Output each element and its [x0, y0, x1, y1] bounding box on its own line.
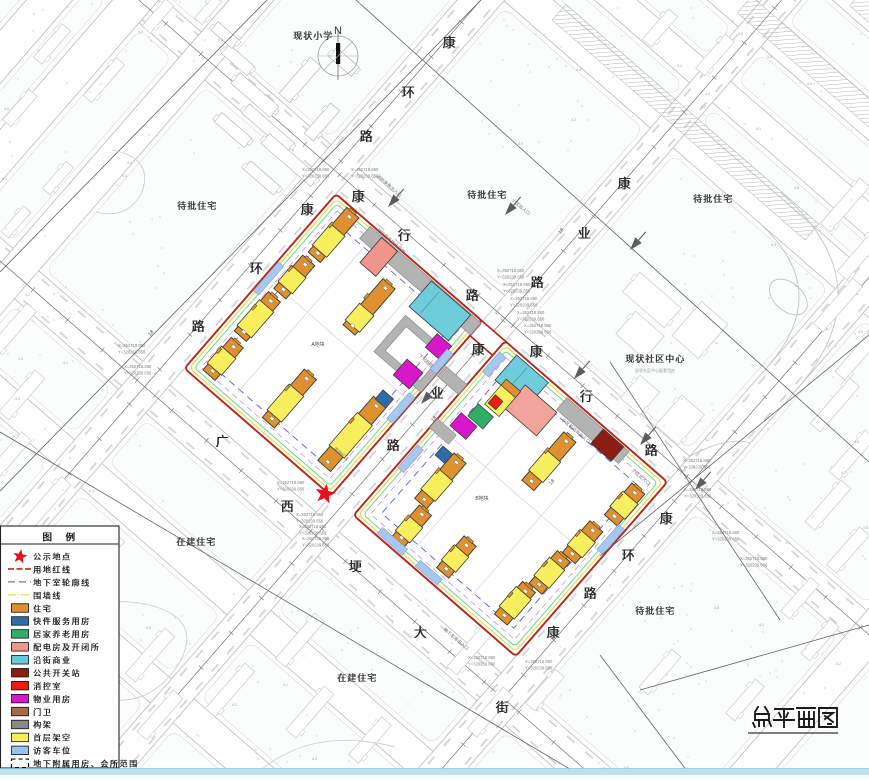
svg-text:X=352718.860: X=352718.860: [118, 343, 146, 348]
svg-text:Y=320239.656: Y=320239.656: [302, 543, 330, 548]
svg-text:X=352718.860: X=352718.860: [277, 480, 305, 485]
svg-text:路: 路: [360, 129, 373, 144]
svg-text:4.1: 4.1: [756, 127, 761, 131]
svg-text:X=352718.860: X=352718.860: [497, 268, 525, 273]
svg-text:路: 路: [387, 438, 400, 453]
svg-text:配电房及开闭所: 配电房及开闭所: [33, 642, 100, 652]
svg-text:路: 路: [466, 288, 479, 303]
svg-text:地下附属用房、会所范围: 地下附属用房、会所范围: [33, 759, 139, 769]
svg-text:现状社区中心: 现状社区中心: [625, 353, 685, 364]
svg-text:门卫: 门卫: [33, 707, 52, 717]
svg-text:Y=320239.656: Y=320239.656: [683, 465, 711, 470]
svg-text:4.5: 4.5: [738, 32, 743, 36]
svg-text:4.3: 4.3: [146, 626, 151, 630]
svg-text:X=352718.860: X=352718.860: [299, 524, 327, 529]
svg-text:4.4: 4.4: [771, 243, 776, 247]
svg-text:在建住宅: 在建住宅: [337, 672, 377, 683]
svg-text:4.7: 4.7: [701, 105, 706, 109]
svg-text:X=352718.860: X=352718.860: [740, 556, 768, 561]
svg-text:4.2: 4.2: [571, 118, 576, 122]
svg-text:地下室轮廓线: 地下室轮廓线: [33, 577, 91, 587]
svg-text:4.1: 4.1: [785, 541, 790, 545]
svg-text:Y=320239.656: Y=320239.656: [524, 330, 552, 335]
svg-text:4.0: 4.0: [858, 330, 863, 334]
svg-text:Y=320239.656: Y=320239.656: [740, 563, 768, 568]
svg-text:康: 康: [472, 342, 485, 357]
svg-text:业: 业: [431, 386, 444, 401]
svg-text:物业用房: 物业用房: [33, 694, 71, 704]
svg-text:待批住宅: 待批住宅: [635, 605, 675, 616]
svg-text:Y=320239.656: Y=320239.656: [118, 350, 146, 355]
svg-text:4.3: 4.3: [89, 489, 94, 493]
svg-text:4.2: 4.2: [25, 293, 30, 297]
svg-text:4.5: 4.5: [863, 526, 868, 530]
svg-text:Y=320239.656: Y=320239.656: [503, 289, 531, 294]
svg-text:环: 环: [250, 261, 263, 276]
svg-text:X=352718.860: X=352718.860: [525, 659, 553, 664]
svg-text:4.2: 4.2: [836, 662, 841, 666]
svg-text:4.5: 4.5: [4, 107, 9, 111]
svg-text:4.7: 4.7: [841, 471, 846, 475]
svg-text:业: 业: [578, 226, 591, 241]
svg-text:康: 康: [352, 189, 365, 204]
svg-text:X=352718.860: X=352718.860: [684, 487, 712, 492]
svg-text:住宅: 住宅: [33, 603, 52, 613]
svg-text:B地块: B地块: [475, 495, 488, 502]
svg-text:X=352718.860: X=352718.860: [302, 167, 330, 172]
svg-text:X=352718.860: X=352718.860: [683, 458, 711, 463]
svg-text:Y=320239.656: Y=320239.656: [712, 537, 740, 542]
svg-text:用地红线: 用地红线: [33, 564, 71, 574]
svg-text:公示地点: 公示地点: [33, 552, 71, 562]
svg-text:4.2: 4.2: [705, 438, 710, 442]
svg-text:4.6: 4.6: [854, 440, 859, 444]
svg-text:康: 康: [618, 176, 631, 191]
svg-text:Y=320239.656: Y=320239.656: [684, 494, 712, 499]
svg-text:康: 康: [443, 35, 456, 50]
svg-text:Y=320239.656: Y=320239.656: [351, 174, 379, 179]
svg-text:4.4: 4.4: [18, 357, 23, 361]
svg-text:待批住宅: 待批住宅: [693, 193, 733, 204]
svg-text:X=352718.860: X=352718.860: [510, 296, 538, 301]
svg-text:4.3: 4.3: [122, 174, 127, 178]
svg-text:大: 大: [414, 625, 427, 640]
svg-text:环: 环: [622, 548, 635, 563]
svg-text:待批住宅: 待批住宅: [177, 200, 217, 211]
svg-text:康: 康: [547, 625, 560, 640]
svg-text:例: 例: [66, 532, 76, 544]
svg-text:X=352718.860: X=352718.860: [296, 512, 324, 517]
svg-text:埂: 埂: [349, 559, 362, 574]
svg-text:X=352718.860: X=352718.860: [712, 530, 740, 535]
svg-text:Y=320239.656: Y=320239.656: [296, 519, 324, 524]
svg-text:Y=320239.656: Y=320239.656: [510, 303, 538, 308]
svg-text:Y=320239.656: Y=320239.656: [525, 666, 553, 671]
svg-text:4.0: 4.0: [518, 142, 523, 146]
svg-text:首层架空: 首层架空: [33, 733, 71, 743]
svg-text:路: 路: [584, 586, 597, 601]
svg-text:4.0: 4.0: [15, 397, 20, 401]
svg-text:公共开关站: 公共开关站: [33, 668, 81, 678]
svg-text:X=352718.860: X=352718.860: [517, 310, 545, 315]
svg-text:4.1: 4.1: [63, 361, 68, 365]
svg-text:路: 路: [192, 319, 205, 334]
svg-text:A地块: A地块: [311, 341, 324, 348]
svg-text:4.6: 4.6: [807, 82, 812, 86]
svg-text:X=352718.860: X=352718.860: [351, 167, 379, 172]
svg-text:行: 行: [398, 228, 411, 243]
svg-text:路: 路: [645, 443, 658, 458]
svg-text:围墙线: 围墙线: [33, 590, 62, 600]
svg-text:X=352718.860: X=352718.860: [468, 655, 496, 660]
svg-text:街: 街: [496, 700, 509, 715]
svg-text:康: 康: [530, 344, 543, 359]
svg-text:待批住宅: 待批住宅: [467, 189, 507, 200]
svg-text:Y=320239.656: Y=320239.656: [124, 371, 152, 376]
svg-text:4.8: 4.8: [714, 606, 719, 610]
svg-text:Y=320239.656: Y=320239.656: [277, 487, 305, 492]
svg-text:在建住宅: 在建住宅: [176, 536, 216, 547]
svg-text:消控室: 消控室: [33, 681, 62, 691]
svg-text:西: 西: [281, 499, 294, 514]
svg-text:4.1: 4.1: [2, 177, 7, 181]
svg-text:X=352718.860: X=352718.860: [124, 364, 152, 369]
svg-text:4.1: 4.1: [283, 683, 288, 687]
svg-text:康: 康: [660, 511, 673, 526]
svg-text:路: 路: [531, 275, 544, 290]
svg-text:现状社区中心配套用房: 现状社区中心配套用房: [635, 367, 675, 373]
svg-text:X=352718.860: X=352718.860: [302, 536, 330, 541]
svg-text:广: 广: [216, 434, 229, 449]
svg-text:4.2: 4.2: [127, 161, 132, 165]
svg-text:4.0: 4.0: [218, 38, 223, 42]
svg-text:4.5: 4.5: [794, 186, 799, 190]
svg-text:居家养老用房: 居家养老用房: [33, 629, 91, 639]
svg-text:Y=320239.656: Y=320239.656: [468, 662, 496, 667]
svg-text:Y=320239.656: Y=320239.656: [497, 275, 525, 280]
svg-text:快件服务用房: 快件服务用房: [33, 616, 91, 626]
svg-text:X=352718.860: X=352718.860: [503, 282, 531, 287]
svg-text:4.2: 4.2: [705, 92, 710, 96]
svg-text:环: 环: [402, 85, 415, 100]
svg-text:4.1: 4.1: [759, 623, 764, 627]
svg-text:4.1: 4.1: [232, 703, 237, 707]
svg-text:现状小学: 现状小学: [293, 30, 333, 41]
svg-text:X=352718.860: X=352718.860: [524, 323, 552, 328]
svg-text:4.4: 4.4: [677, 64, 682, 68]
svg-text:4.8: 4.8: [767, 55, 772, 59]
svg-text:沿街商业: 沿街商业: [33, 655, 71, 665]
svg-text:康: 康: [301, 202, 314, 217]
svg-text:4.4: 4.4: [138, 30, 143, 34]
svg-text:N: N: [334, 25, 342, 37]
svg-text:行: 行: [580, 389, 593, 404]
svg-text:访客车位: 访客车位: [33, 746, 71, 756]
svg-text:4.3: 4.3: [312, 757, 317, 761]
svg-text:Y=320239.656: Y=320239.656: [299, 531, 327, 536]
svg-text:4.0: 4.0: [576, 68, 581, 72]
svg-text:图: 图: [43, 533, 53, 544]
svg-text:Y=320239.656: Y=320239.656: [517, 317, 545, 322]
svg-text:构架: 构架: [33, 720, 52, 730]
svg-text:Y=320239.656: Y=320239.656: [302, 174, 330, 179]
